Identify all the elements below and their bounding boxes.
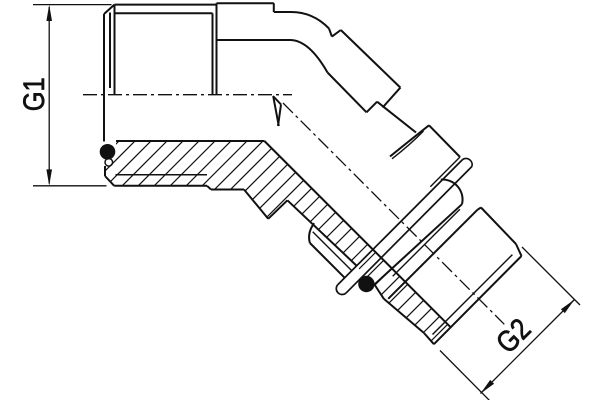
svg-text:G1: G1 xyxy=(18,77,51,111)
